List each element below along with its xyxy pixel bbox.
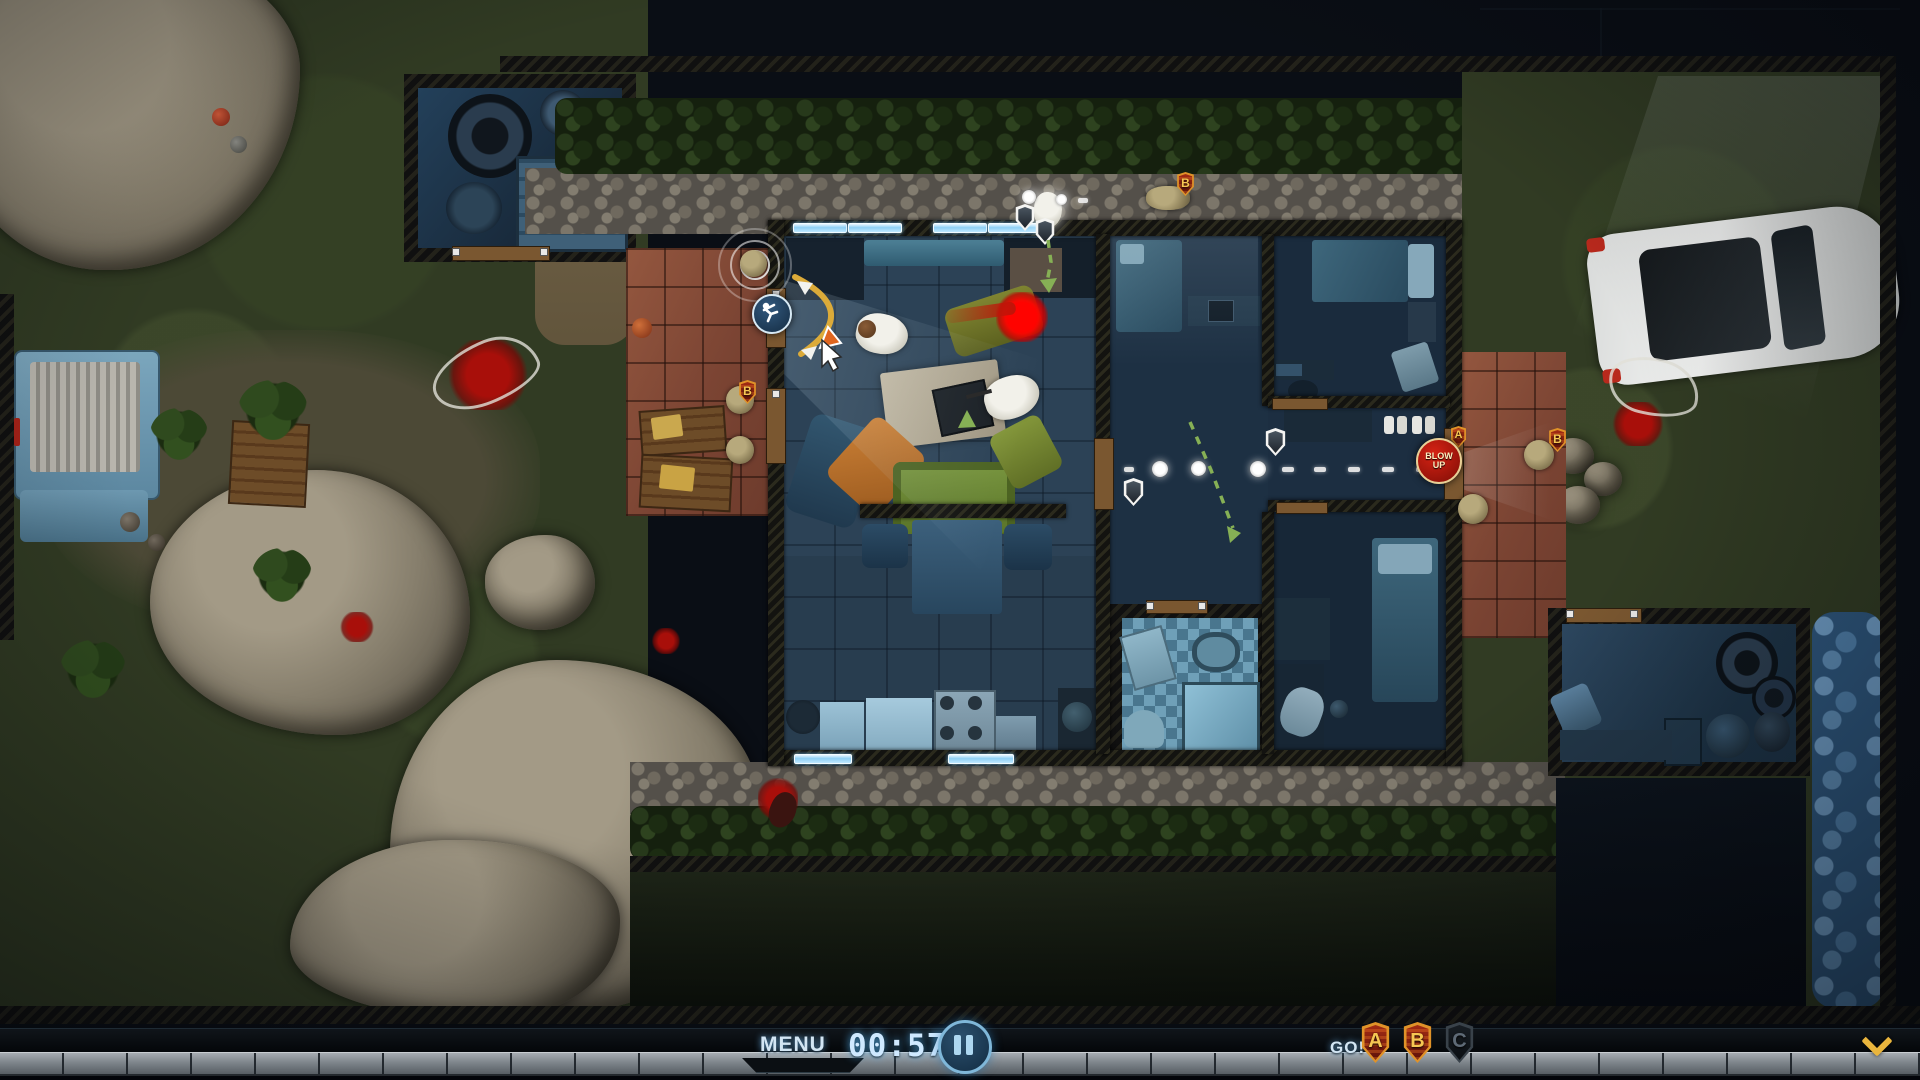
dining-chair [862, 524, 908, 568]
blood-pool [652, 628, 680, 654]
doorway-bedroom-bottom[interactable] [1276, 502, 1328, 514]
palm-bush [150, 408, 208, 460]
bed [1312, 240, 1408, 302]
bench [1560, 730, 1672, 760]
door-hinge [452, 248, 460, 256]
dresser [1408, 302, 1436, 342]
blood-pool [340, 612, 374, 642]
doorway-bedroom-top[interactable] [1272, 398, 1328, 410]
barrel [148, 534, 165, 551]
squad-b-button[interactable]: B [1402, 1022, 1433, 1063]
door-hinge [772, 390, 780, 398]
squad-badge-b-top-path[interactable]: B [1176, 172, 1195, 196]
palm-bush [60, 640, 126, 698]
blue-bush-strip [1812, 612, 1884, 1008]
garage-door [452, 246, 550, 261]
shoes [1397, 416, 1407, 434]
game-viewport: B B A B BLOW UP MENU [0, 0, 1920, 1080]
pickup-truck-bed [30, 362, 140, 472]
storage-box [1272, 598, 1330, 660]
blood-splatter [996, 292, 1048, 342]
water-heater [1062, 702, 1092, 732]
path-dash [1382, 467, 1394, 472]
shield-marker-icon[interactable] [1264, 428, 1287, 456]
door-hinge [1566, 610, 1574, 618]
half-wall [860, 504, 1066, 518]
palm-bush [238, 380, 308, 440]
drum [1706, 714, 1750, 758]
window [793, 223, 847, 233]
door-hinge [1630, 610, 1638, 618]
window [794, 754, 852, 764]
frying-pan [786, 700, 820, 734]
flashbang-throw-icon[interactable] [752, 294, 792, 334]
palm-bush [252, 548, 312, 602]
wall-middle-right-top [1262, 234, 1274, 406]
cabinet-row [1284, 410, 1372, 442]
window [933, 223, 987, 233]
barrel-orange [632, 318, 652, 338]
documents [659, 464, 695, 491]
swat-operator[interactable] [1458, 494, 1488, 524]
sink [1124, 710, 1164, 748]
burner [940, 696, 954, 710]
basin [446, 182, 502, 234]
door-west-patio[interactable] [766, 388, 786, 464]
dining-chair [1004, 524, 1052, 570]
rock-boulder [485, 535, 595, 630]
path-dash [1282, 467, 1294, 472]
dining-table [912, 520, 1002, 614]
swat-operator-breacher[interactable] [740, 250, 767, 277]
waypoint-dot[interactable] [1022, 190, 1036, 204]
blow-up-order-badge[interactable]: BLOW UP [1416, 438, 1462, 484]
squad-badge-b-left-door[interactable]: B [738, 380, 757, 404]
path-dash [1124, 467, 1134, 472]
mission-timer: 00:57 [848, 1028, 946, 1064]
computer-monitor [1276, 364, 1302, 376]
swat-operator[interactable] [726, 436, 754, 464]
window [948, 754, 1014, 764]
door-hinge [1146, 602, 1154, 610]
taillight [14, 418, 20, 446]
menu-button[interactable]: MENU [760, 1033, 826, 1057]
cabinet-small [996, 716, 1036, 752]
cabinet [786, 238, 864, 300]
ball [1330, 700, 1348, 718]
pause-button[interactable] [938, 1020, 992, 1074]
dark-porch [1556, 778, 1806, 1008]
shoes [1384, 416, 1394, 434]
window [848, 223, 902, 233]
shoes [1425, 416, 1435, 434]
path-dash [1314, 467, 1326, 472]
squad-badge-b-right-patio[interactable]: B [1548, 428, 1567, 452]
pillow [1408, 244, 1434, 298]
shield-marker-icon[interactable] [1014, 204, 1036, 231]
boundary-wall-left [0, 294, 14, 640]
pause-icon [954, 1035, 961, 1055]
drum [1754, 712, 1790, 752]
car-sunroof [1638, 236, 1773, 362]
barrel [230, 136, 247, 153]
boundary-wall-right [1880, 56, 1896, 1014]
waypoint-dot[interactable] [1250, 461, 1266, 477]
kitchen-counter [866, 698, 932, 752]
taillight [1586, 237, 1606, 253]
sideboard [1010, 248, 1062, 292]
hedge-top [555, 98, 1570, 174]
shield-marker-icon[interactable] [1034, 218, 1056, 245]
barrel-red [212, 108, 230, 126]
shoes [1412, 416, 1422, 434]
boundary-wall-bottom [630, 856, 1570, 872]
waypoint-dot[interactable] [1191, 461, 1206, 476]
civilian-hair [858, 320, 876, 338]
computer-monitor [1208, 300, 1234, 322]
fridge [820, 702, 864, 752]
pillow [1120, 244, 1144, 264]
door-hinge [1198, 602, 1206, 610]
burner [968, 726, 982, 740]
wall-middle-right-bottom [1262, 512, 1274, 754]
burner [940, 726, 954, 740]
door-living-middle[interactable] [1094, 438, 1114, 510]
waypoint-dot[interactable] [1056, 194, 1067, 205]
dark-grass-south [630, 872, 1570, 1014]
waypoint-dot[interactable] [1152, 461, 1168, 477]
menu-tab [742, 1058, 864, 1073]
shield-marker-icon[interactable] [1122, 478, 1145, 506]
oob-line [1480, 8, 1900, 10]
boundary-wall-top [500, 56, 1894, 72]
shower [1182, 682, 1260, 754]
path-dash [1348, 467, 1360, 472]
path-dash [1078, 198, 1088, 203]
burner [968, 696, 982, 710]
pillow [1378, 544, 1432, 574]
blow-up-label: BLOW UP [1418, 452, 1460, 471]
house-wall-south [768, 750, 1462, 766]
barrel [120, 512, 140, 532]
door-hinge [540, 248, 548, 256]
squad-c-button[interactable]: C [1444, 1022, 1475, 1063]
squad-a-button[interactable]: A [1360, 1022, 1391, 1063]
pause-icon [966, 1035, 973, 1055]
toilet [1192, 632, 1240, 672]
documents [651, 414, 684, 440]
kitchen-counter-teal [864, 240, 1004, 266]
